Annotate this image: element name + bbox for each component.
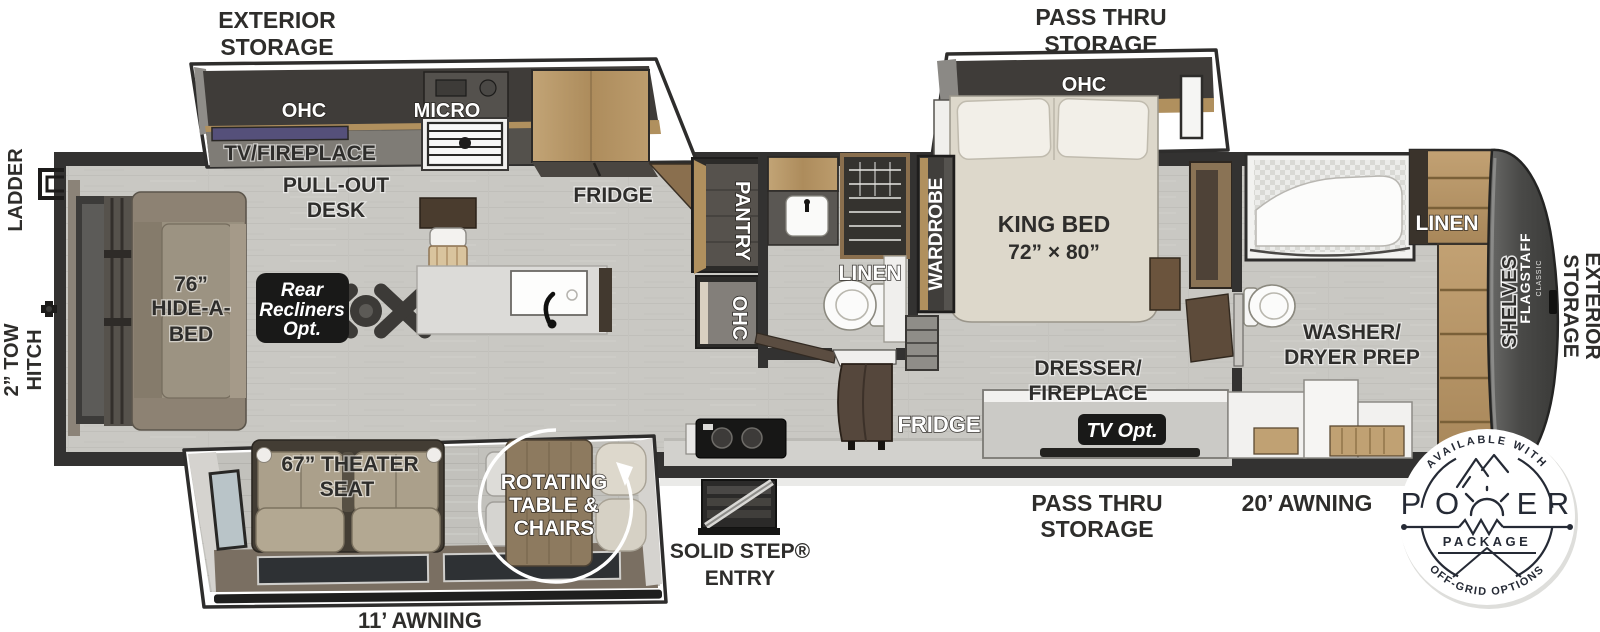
svg-text:WASHER/: WASHER/	[1303, 321, 1401, 344]
svg-text:BED: BED	[169, 323, 213, 346]
svg-text:FRIDGE: FRIDGE	[573, 184, 652, 207]
svg-text:2” TOW: 2” TOW	[1, 323, 23, 396]
svg-text:FRIDGE: FRIDGE	[897, 412, 980, 437]
svg-text:LINEN: LINEN	[839, 262, 902, 285]
svg-text:TV Opt.: TV Opt.	[1086, 420, 1157, 442]
svg-text:EXTERIOR: EXTERIOR	[1581, 252, 1600, 359]
svg-text:ROTATING: ROTATING	[501, 471, 608, 494]
svg-text:SHELVES: SHELVES	[1499, 256, 1521, 348]
svg-text:ENTRY: ENTRY	[705, 567, 775, 590]
svg-text:HIDE-A-: HIDE-A-	[151, 297, 230, 320]
svg-text:67” THEATER: 67” THEATER	[281, 453, 418, 476]
svg-text:R: R	[1547, 486, 1569, 521]
svg-text:Opt.: Opt.	[283, 319, 321, 340]
svg-text:STORAGE: STORAGE	[1044, 31, 1157, 57]
svg-text:TV/FIREPLACE: TV/FIREPLACE	[224, 142, 376, 165]
svg-text:PANTRY: PANTRY	[731, 181, 753, 262]
svg-text:STORAGE: STORAGE	[220, 34, 333, 60]
svg-text:LADDER: LADDER	[5, 148, 27, 232]
svg-text:76”: 76”	[174, 273, 208, 296]
svg-text:11’ AWNING: 11’ AWNING	[358, 608, 482, 632]
svg-text:LINEN: LINEN	[1416, 212, 1479, 235]
svg-text:72” × 80”: 72” × 80”	[1008, 241, 1100, 264]
svg-text:SOLID STEP®: SOLID STEP®	[670, 540, 811, 563]
svg-text:OHC: OHC	[1062, 74, 1106, 96]
svg-text:P: P	[1401, 486, 1422, 521]
svg-text:MICRO: MICRO	[414, 100, 481, 122]
svg-text:PASS THRU: PASS THRU	[1031, 490, 1162, 516]
svg-text:WARDROBE: WARDROBE	[926, 178, 947, 291]
svg-text:E: E	[1517, 486, 1538, 521]
svg-text:DRESSER/: DRESSER/	[1034, 357, 1142, 380]
svg-text:Rear: Rear	[281, 280, 325, 301]
svg-text:FIREPLACE: FIREPLACE	[1028, 382, 1147, 405]
svg-text:DRYER PREP: DRYER PREP	[1284, 346, 1420, 369]
svg-text:KING BED: KING BED	[998, 211, 1110, 237]
svg-text:Recliners: Recliners	[259, 300, 345, 321]
svg-text:OHC: OHC	[282, 100, 326, 122]
svg-text:OHC: OHC	[728, 296, 750, 340]
svg-text:DESK: DESK	[307, 199, 365, 222]
svg-text:HITCH: HITCH	[24, 329, 46, 390]
svg-text:STORAGE: STORAGE	[1040, 516, 1153, 542]
svg-text:CHAIRS: CHAIRS	[514, 517, 595, 540]
svg-text:STORAGE: STORAGE	[1559, 254, 1582, 357]
svg-text:PULL-OUT: PULL-OUT	[283, 174, 389, 197]
svg-text:SEAT: SEAT	[320, 478, 375, 501]
svg-text:CLASSIC: CLASSIC	[1536, 260, 1543, 297]
svg-text:TABLE &: TABLE &	[509, 494, 598, 517]
svg-text:PACKAGE: PACKAGE	[1443, 534, 1532, 549]
svg-text:O: O	[1435, 486, 1459, 521]
svg-text:EXTERIOR: EXTERIOR	[218, 7, 336, 33]
svg-text:PASS THRU: PASS THRU	[1035, 4, 1166, 30]
svg-text:20’ AWNING: 20’ AWNING	[1242, 490, 1373, 516]
